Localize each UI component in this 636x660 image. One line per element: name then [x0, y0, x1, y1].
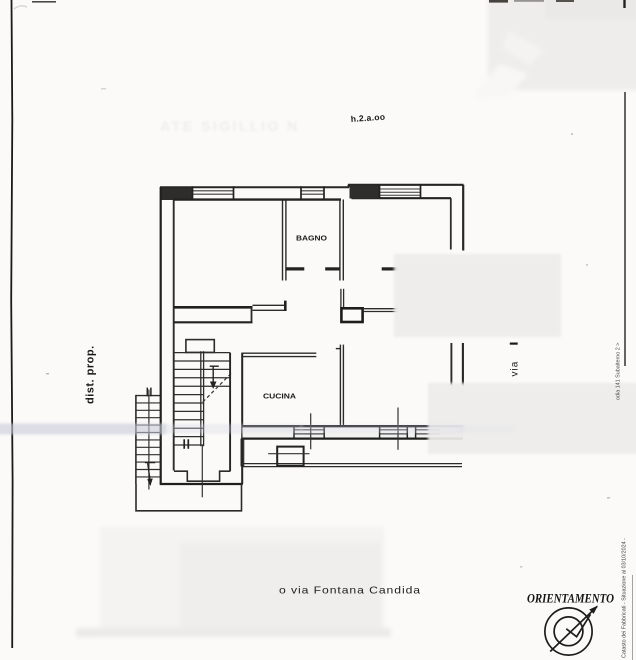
svg-text:odia 141 Subalterno 2 >: odia 141 Subalterno 2 > — [616, 343, 622, 400]
svg-text:Catasto dei Fabbricati - Situa: Catasto dei Fabbricati - Situazione al 0… — [622, 538, 628, 658]
svg-text:CUCINA: CUCINA — [263, 392, 297, 401]
svg-text:ORIENTAMENTO: ORIENTAMENTO — [527, 591, 615, 606]
svg-text:o via Fontana Candida: o via Fontana Candida — [279, 585, 421, 597]
svg-text:BAGNO: BAGNO — [296, 234, 327, 243]
svg-text:via: via — [510, 361, 521, 377]
svg-text:dist. prop.: dist. prop. — [85, 345, 97, 404]
svg-text:ATE SIGILLIO N: ATE SIGILLIO N — [160, 118, 300, 134]
